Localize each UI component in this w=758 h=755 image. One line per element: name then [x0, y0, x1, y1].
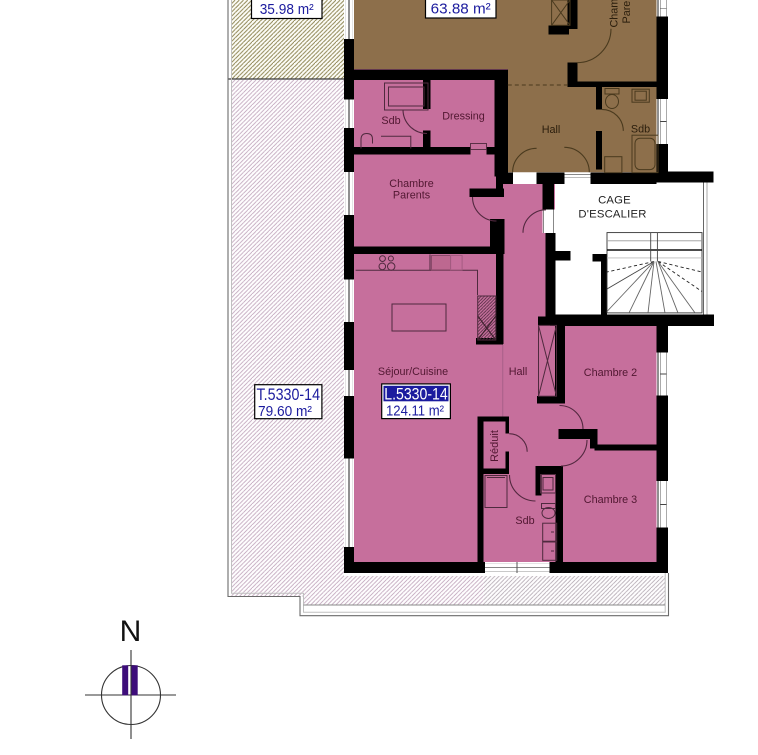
svg-text:Parents: Parents — [393, 190, 431, 202]
svg-text:Sdb: Sdb — [631, 124, 650, 136]
svg-text:L.5330-14: L.5330-14 — [384, 386, 448, 404]
svg-text:CAGE: CAGE — [598, 195, 631, 207]
svg-text:Chambre 3: Chambre 3 — [584, 494, 637, 506]
svg-text:124.11 m²: 124.11 m² — [386, 404, 444, 420]
svg-text:63.88 m²: 63.88 m² — [431, 1, 491, 18]
svg-text:Dressing: Dressing — [442, 111, 485, 123]
svg-text:35.98 m²: 35.98 m² — [260, 2, 314, 18]
svg-text:T.5330-14: T.5330-14 — [257, 386, 321, 404]
svg-text:Sdb: Sdb — [515, 515, 534, 527]
svg-text:Réduit: Réduit — [489, 430, 501, 462]
svg-text:Parents: Parents — [621, 0, 633, 24]
svg-text:Chambre: Chambre — [609, 0, 621, 28]
svg-text:N: N — [120, 615, 142, 648]
svg-text:Hall: Hall — [509, 366, 528, 378]
svg-text:79.60 m²: 79.60 m² — [258, 404, 312, 420]
svg-text:Chambre 2: Chambre 2 — [584, 367, 637, 379]
svg-text:Séjour/Cuisine: Séjour/Cuisine — [378, 366, 448, 378]
svg-text:D'ESCALIER: D'ESCALIER — [578, 209, 646, 221]
svg-text:Sdb: Sdb — [381, 115, 400, 127]
svg-text:Hall: Hall — [542, 124, 561, 136]
svg-text:Chambre: Chambre — [389, 178, 433, 190]
